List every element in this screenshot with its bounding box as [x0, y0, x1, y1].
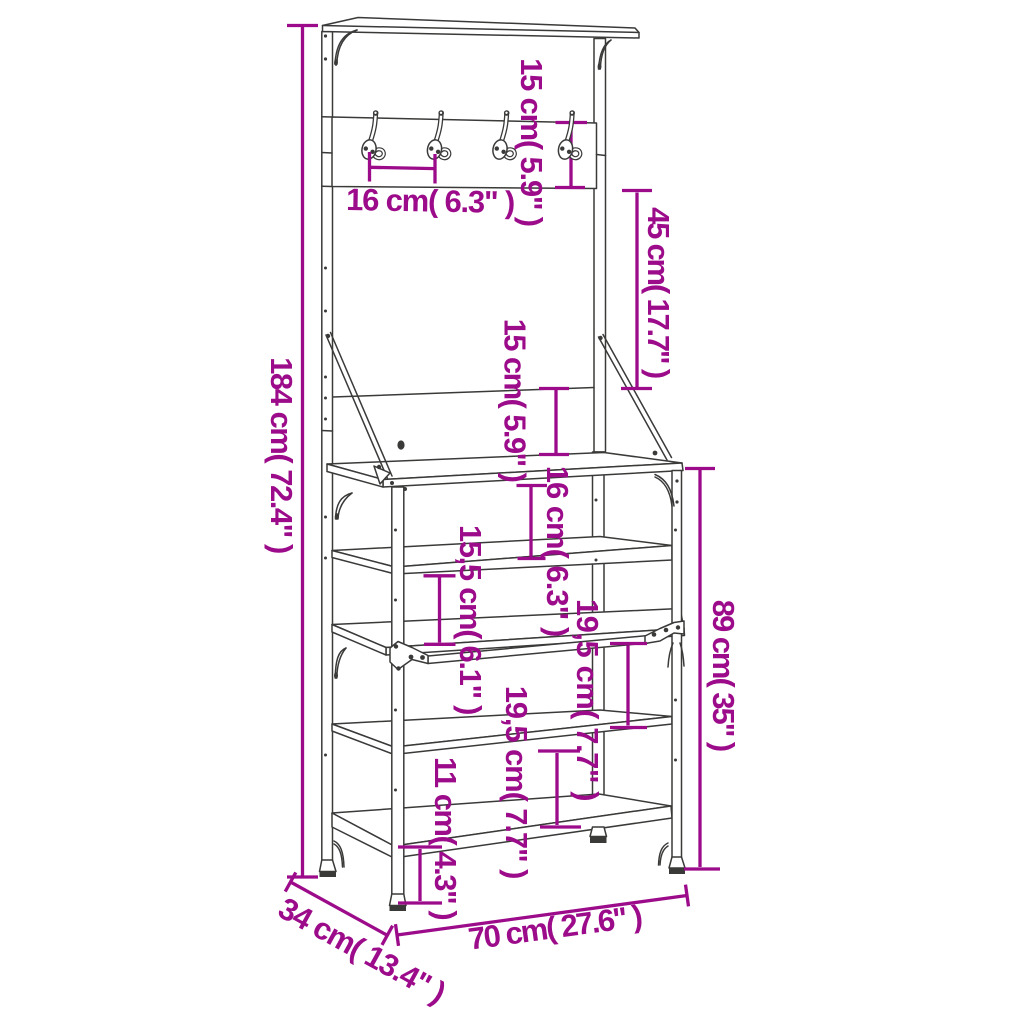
- svg-text:16 cm( 6.3" ): 16 cm( 6.3" ): [540, 466, 575, 637]
- svg-text:45 cm( 17.7" ): 45 cm( 17.7" ): [641, 207, 676, 378]
- svg-text:16 cm( 6.3" ): 16 cm( 6.3" ): [346, 182, 514, 220]
- svg-text:19,5 cm( 7.7" ): 19,5 cm( 7.7" ): [570, 599, 605, 801]
- svg-text:19,5 cm( 7.7" ): 19,5 cm( 7.7" ): [499, 686, 534, 879]
- svg-text:184 cm( 72.4" ): 184 cm( 72.4" ): [264, 357, 299, 553]
- svg-text:15 cm( 5.9" ): 15 cm( 5.9" ): [498, 319, 533, 482]
- svg-text:11 cm( 4.3" ): 11 cm( 4.3" ): [428, 757, 463, 920]
- svg-text:15 cm( 5.9" ): 15 cm( 5.9" ): [514, 58, 549, 226]
- svg-text:89 cm( 35" ): 89 cm( 35" ): [706, 600, 741, 751]
- svg-text:15,5 cm( 6.1" ): 15,5 cm( 6.1" ): [453, 525, 488, 714]
